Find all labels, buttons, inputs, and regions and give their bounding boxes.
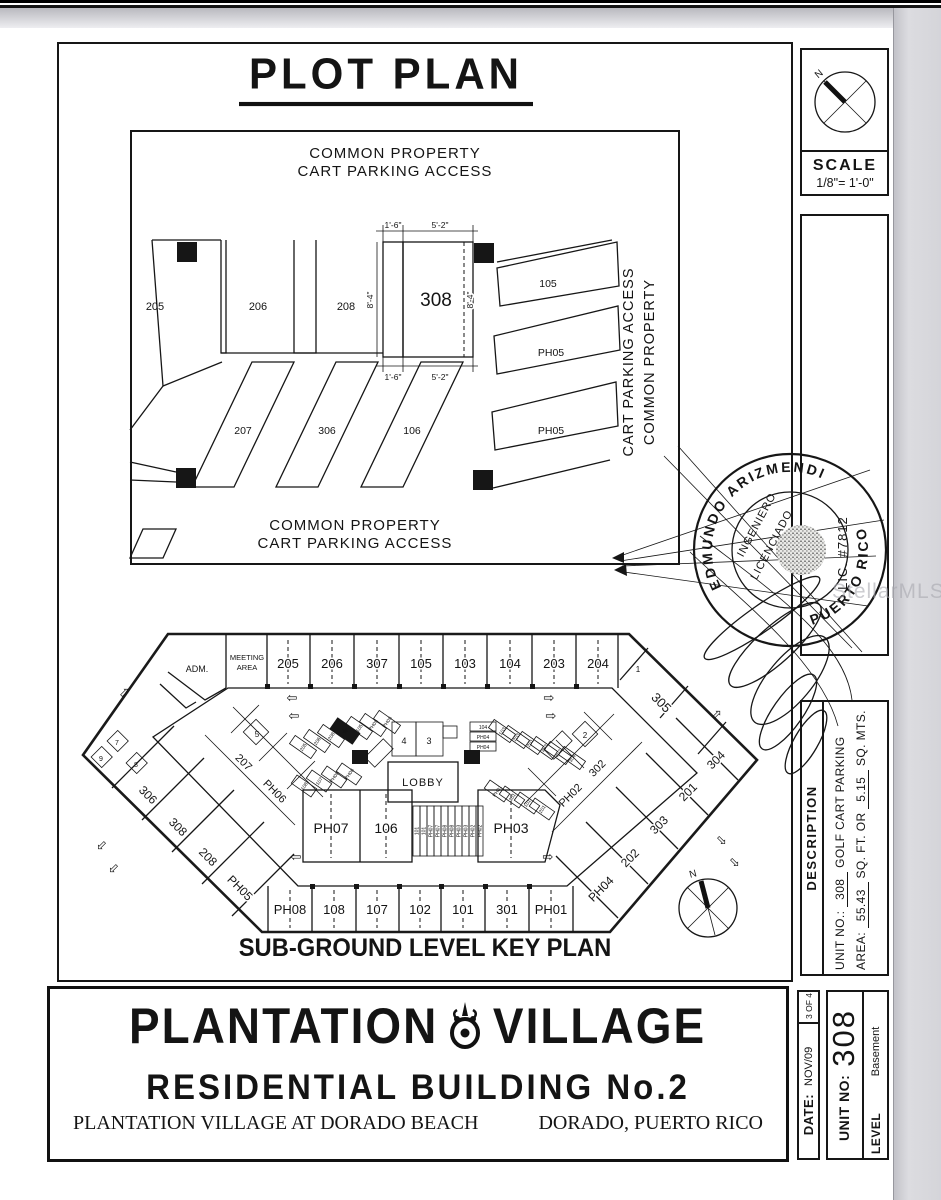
description-label-strip: DESCRIPTION bbox=[800, 700, 822, 976]
plot-plan-title-text: PLOT PLAN bbox=[239, 49, 533, 106]
project-name-line: PLANTATION VILLAGE bbox=[47, 1000, 789, 1052]
sheet-cell: 3 OF 4 bbox=[797, 990, 820, 1022]
unit-no-cell: UNIT NO: 308 bbox=[826, 990, 862, 1160]
project-name-left: PLANTATION bbox=[129, 997, 438, 1055]
unit-use: GOLF CART PARKING bbox=[833, 736, 847, 868]
date-label: DATE: bbox=[801, 1094, 816, 1135]
scale-divider bbox=[800, 150, 889, 152]
address-right: DORADO, PUERTO RICO bbox=[538, 1112, 763, 1135]
scan-top-gradient bbox=[0, 8, 941, 28]
area-mid: SQ. FT. OR bbox=[854, 812, 868, 878]
unit-block-label: UNIT NO: bbox=[836, 1075, 852, 1141]
level-cell: LEVEL Basement bbox=[864, 990, 888, 1160]
date-cell: DATE: NOV/09 bbox=[797, 1022, 820, 1160]
north-scale-box bbox=[800, 48, 889, 196]
level-value: Basement bbox=[870, 990, 882, 1113]
unit-no-value: 308 bbox=[833, 872, 848, 907]
description-divider bbox=[822, 700, 824, 976]
area-sqft-value: 55.43 bbox=[854, 882, 869, 928]
description-label: DESCRIPTION bbox=[804, 785, 819, 890]
area-unit: SQ. MTS. bbox=[854, 710, 868, 766]
area-label: AREA: bbox=[854, 932, 868, 970]
sheet-number: 3 OF 4 bbox=[804, 993, 814, 1019]
level-label: LEVEL bbox=[869, 1113, 883, 1154]
date-value: NOV/09 bbox=[803, 1047, 815, 1086]
plot-plan-title: PLOT PLAN bbox=[228, 49, 544, 106]
address-left: PLANTATION VILLAGE AT DORADO BEACH bbox=[73, 1112, 478, 1135]
unit-block-value: 308 bbox=[826, 1009, 862, 1067]
mls-watermark: StellarMLS bbox=[832, 580, 941, 604]
description-content: UNIT NO.: 308 GOLF CART PARKING AREA: 55… bbox=[826, 704, 874, 972]
key-plan-caption: SUB-GROUND LEVEL KEY PLAN bbox=[235, 934, 615, 963]
address-line: PLANTATION VILLAGE AT DORADO BEACH DORAD… bbox=[47, 1112, 789, 1135]
village-logo bbox=[447, 1000, 483, 1052]
project-name-right: VILLAGE bbox=[493, 997, 706, 1055]
description-area-line: AREA: 55.43 SQ. FT. OR 5.15 SQ. MTS. bbox=[854, 710, 868, 970]
scan-right-margin bbox=[893, 8, 941, 1200]
scan-top-bar bbox=[0, 0, 941, 3]
building-name: RESIDENTIAL BUILDING No.2 bbox=[47, 1066, 789, 1107]
area-sqm-value: 5.15 bbox=[854, 770, 869, 809]
scanned-plot-plan-page: { "watermark": "StellarMLS", "plot_plan"… bbox=[0, 0, 941, 1200]
description-unit-line: UNIT NO.: 308 GOLF CART PARKING bbox=[833, 736, 847, 970]
unit-no-label: UNIT NO.: bbox=[833, 911, 847, 970]
plot-plan-border bbox=[130, 130, 680, 565]
